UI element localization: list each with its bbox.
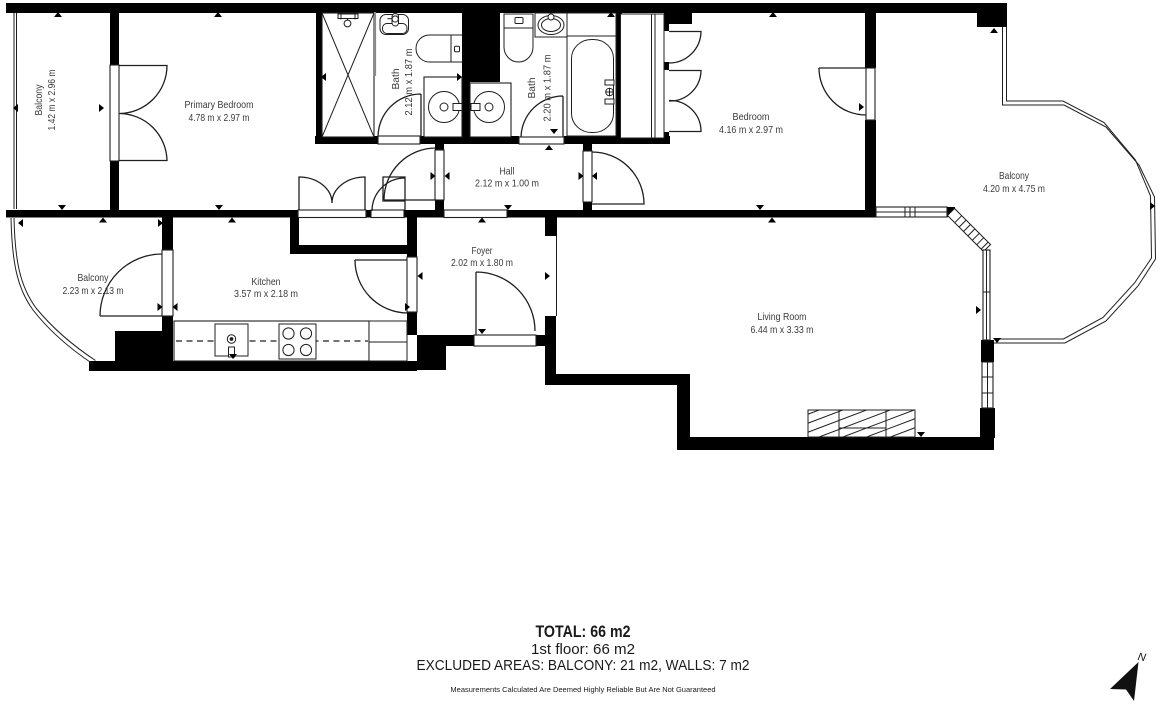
svg-text:2.23 m x 2.13 m: 2.23 m x 2.13 m: [63, 285, 124, 297]
svg-text:4.16 m x 2.97 m: 4.16 m x 2.97 m: [719, 124, 783, 136]
svg-text:2.12 m x 1.00 m: 2.12 m x 1.00 m: [475, 178, 539, 190]
svg-text:3.57 m x 2.18 m: 3.57 m x 2.18 m: [234, 288, 298, 300]
svg-text:4.20 m x 4.75 m: 4.20 m x 4.75 m: [983, 183, 1045, 195]
svg-text:Living Room: Living Room: [758, 311, 807, 323]
svg-text:TOTAL: 66 m2: TOTAL: 66 m2: [536, 623, 631, 641]
svg-text:2.02 m x 1.80 m: 2.02 m x 1.80 m: [451, 257, 513, 269]
svg-text:Bath: Bath: [390, 68, 402, 89]
svg-text:2.12 m x 1.87 m: 2.12 m x 1.87 m: [403, 48, 415, 115]
svg-text:Balcony: Balcony: [999, 170, 1030, 182]
svg-text:Balcony: Balcony: [33, 84, 45, 116]
svg-text:Hall: Hall: [500, 166, 515, 178]
svg-text:Bath: Bath: [526, 77, 538, 98]
svg-text:1st floor: 66 m2: 1st floor: 66 m2: [531, 641, 635, 658]
svg-text:4.78 m x 2.97 m: 4.78 m x 2.97 m: [189, 112, 250, 124]
svg-text:Kitchen: Kitchen: [252, 276, 281, 288]
svg-text:Balcony: Balcony: [78, 272, 110, 284]
svg-text:Bedroom: Bedroom: [733, 111, 770, 123]
svg-text:Foyer: Foyer: [472, 245, 493, 257]
svg-text:2.20 m x 1.87 m: 2.20 m x 1.87 m: [542, 54, 554, 121]
svg-text:Primary Bedroom: Primary Bedroom: [185, 99, 254, 111]
svg-text:Measurements Calculated Are De: Measurements Calculated Are Deemed Highl…: [450, 685, 715, 694]
svg-text:6.44 m x 3.33 m: 6.44 m x 3.33 m: [751, 324, 814, 336]
svg-text:EXCLUDED AREAS: BALCONY: 21 m2: EXCLUDED AREAS: BALCONY: 21 m2, WALLS: 7…: [417, 657, 750, 674]
svg-text:1.42 m x 2.96 m: 1.42 m x 2.96 m: [46, 69, 58, 130]
